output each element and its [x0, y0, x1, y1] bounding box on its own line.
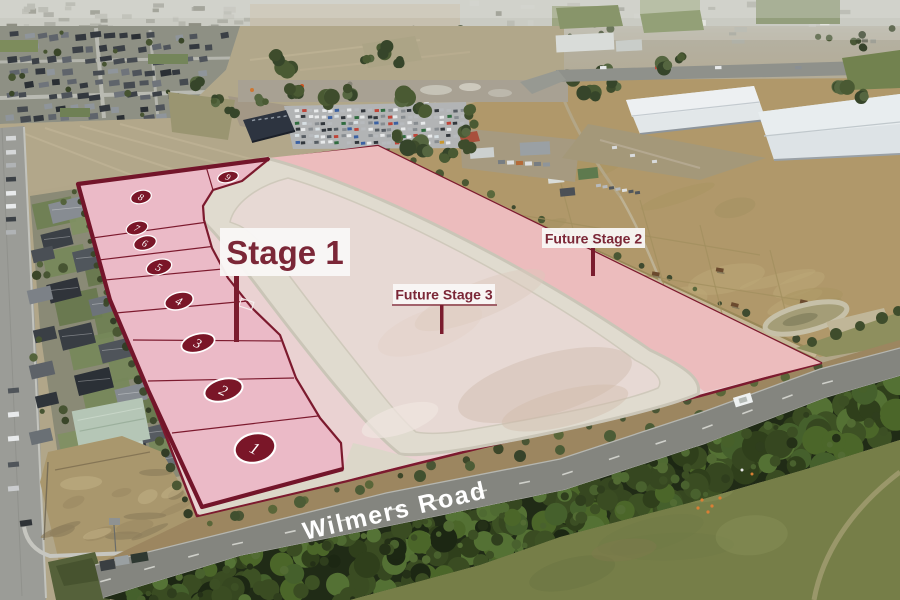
svg-text:Stage 1: Stage 1 [226, 234, 343, 271]
svg-text:Future Stage 3: Future Stage 3 [395, 287, 492, 303]
svg-text:Future Stage 2: Future Stage 2 [545, 231, 642, 247]
